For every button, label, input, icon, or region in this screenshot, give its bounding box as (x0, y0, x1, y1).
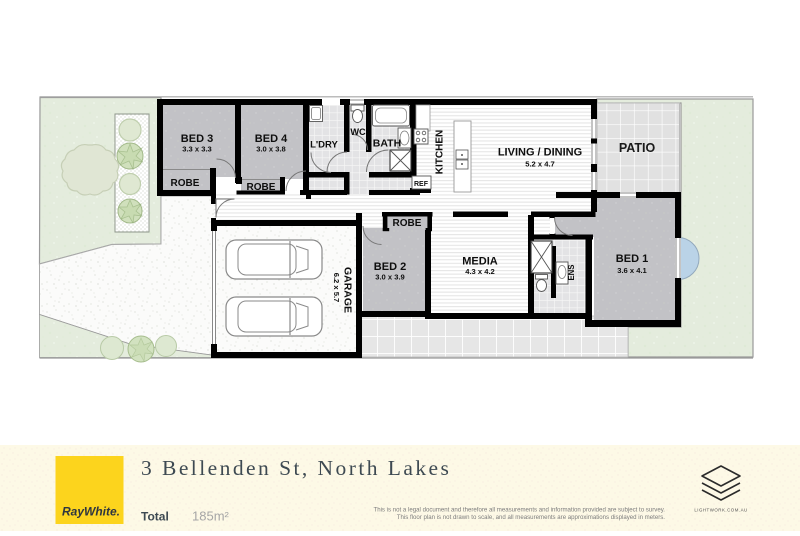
svg-text:6.2 x 5.7: 6.2 x 5.7 (332, 273, 341, 303)
svg-text:KITCHEN: KITCHEN (435, 130, 446, 174)
svg-text:3.0 x 3.9: 3.0 x 3.9 (375, 273, 405, 282)
svg-text:4.3 x 4.2: 4.3 x 4.2 (465, 267, 495, 276)
svg-text:This floor plan is not drawn t: This floor plan is not drawn to scale, a… (397, 514, 666, 521)
svg-text:3.6 x 4.1: 3.6 x 4.1 (617, 266, 647, 275)
svg-text:REF: REF (414, 181, 429, 188)
svg-text:ROBE: ROBE (171, 178, 200, 189)
svg-text:BED 1: BED 1 (616, 253, 648, 265)
svg-text:3 Bellenden St, North Lakes: 3 Bellenden St, North Lakes (141, 456, 451, 480)
svg-text:185m²: 185m² (192, 509, 230, 524)
svg-text:3.0 x 3.8: 3.0 x 3.8 (256, 145, 286, 154)
svg-text:BED 3: BED 3 (181, 133, 213, 145)
svg-text:ENS: ENS (567, 264, 576, 280)
svg-text:MEDIA: MEDIA (462, 256, 498, 268)
svg-text:ROBE: ROBE (393, 218, 422, 229)
svg-text:This is not a legal document a: This is not a legal document and therefo… (373, 507, 665, 514)
svg-text:ROBE: ROBE (247, 182, 276, 193)
svg-text:LIGHTWORK.COM.AU: LIGHTWORK.COM.AU (694, 508, 747, 513)
svg-text:RayWhite.: RayWhite. (62, 505, 120, 519)
svg-text:BATH: BATH (373, 138, 401, 150)
svg-text:L'DRY: L'DRY (310, 140, 338, 151)
svg-text:5.2 x 4.7: 5.2 x 4.7 (525, 160, 555, 169)
svg-text:WC: WC (350, 127, 366, 137)
svg-text:PATIO: PATIO (619, 141, 656, 155)
svg-text:BED 4: BED 4 (255, 133, 288, 145)
svg-text:3.3 x 3.3: 3.3 x 3.3 (182, 145, 212, 154)
svg-text:BED 2: BED 2 (374, 261, 406, 273)
svg-text:Total: Total (141, 510, 169, 524)
svg-text:GARAGE: GARAGE (342, 267, 354, 313)
svg-text:LIVING / DINING: LIVING / DINING (498, 147, 582, 159)
